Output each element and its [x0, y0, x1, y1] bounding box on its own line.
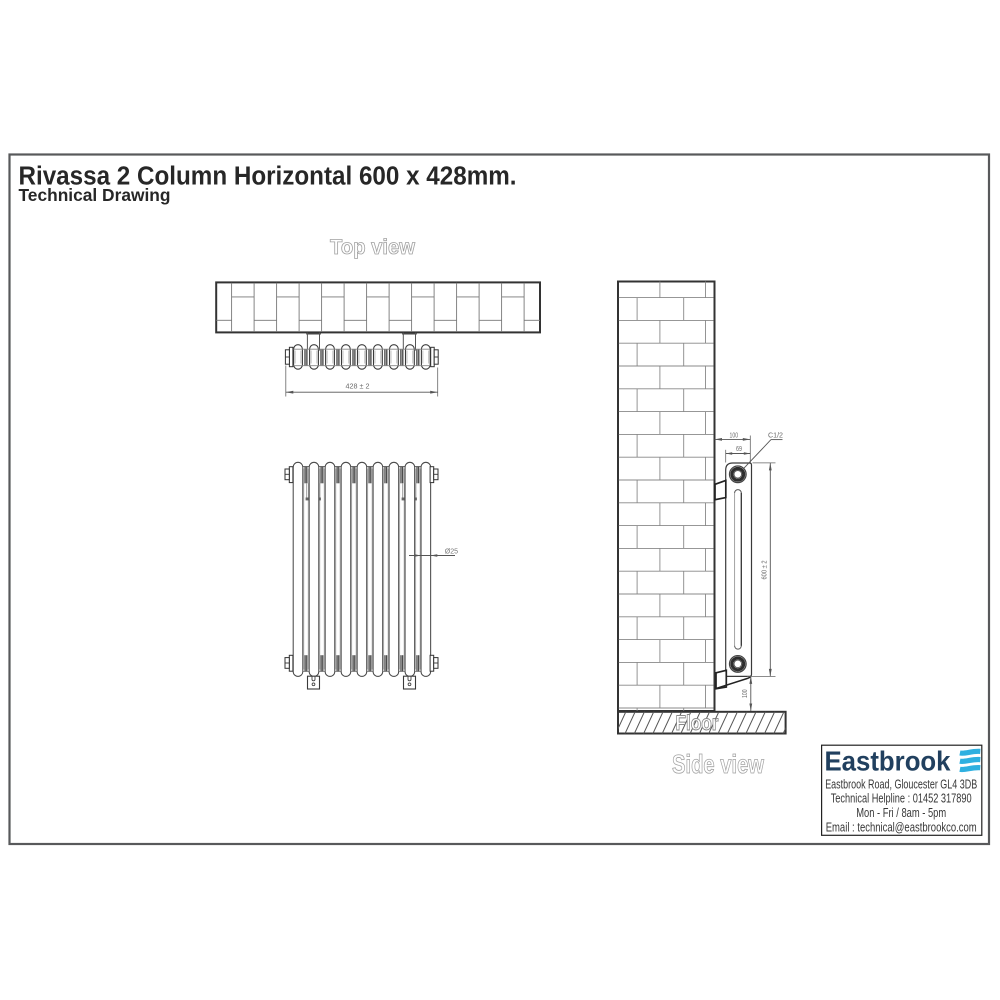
svg-text:Technical Drawing: Technical Drawing [19, 185, 171, 205]
svg-text:Ø25: Ø25 [445, 549, 458, 556]
svg-text:Technical Helpline : 01452 317: Technical Helpline : 01452 317890 [831, 791, 972, 806]
svg-text:Mon - Fri / 8am - 5pm: Mon - Fri / 8am - 5pm [856, 805, 946, 820]
svg-text:C1/2: C1/2 [768, 432, 783, 439]
svg-text:Top view: Top view [330, 235, 415, 259]
svg-text:428 ± 2: 428 ± 2 [346, 383, 370, 390]
svg-text:100: 100 [742, 689, 749, 698]
svg-text:Side view: Side view [672, 749, 765, 779]
svg-text:69: 69 [736, 446, 742, 453]
svg-text:Eastbrook: Eastbrook [825, 746, 952, 777]
svg-text:Email : technical@eastbrookco.: Email : technical@eastbrookco.com [826, 819, 977, 834]
svg-text:100: 100 [730, 432, 739, 439]
svg-text:Eastbrook Road, Gloucester GL4: Eastbrook Road, Gloucester GL4 3DB [825, 776, 977, 791]
svg-text:600 ± 2: 600 ± 2 [761, 560, 768, 579]
svg-text:Floor: Floor [676, 711, 719, 735]
